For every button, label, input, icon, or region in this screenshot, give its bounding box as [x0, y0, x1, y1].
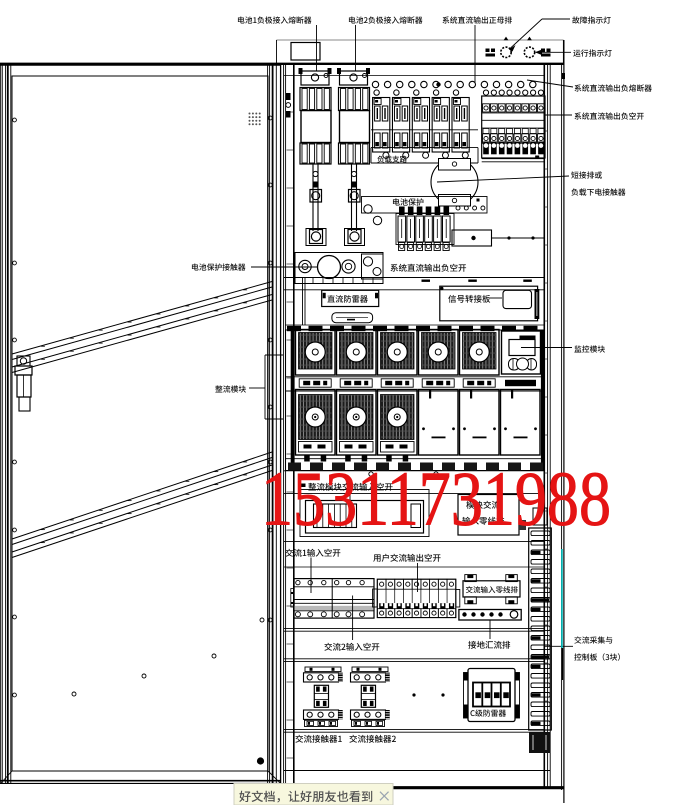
svg-text:15311731988: 15311731988 — [261, 455, 611, 541]
